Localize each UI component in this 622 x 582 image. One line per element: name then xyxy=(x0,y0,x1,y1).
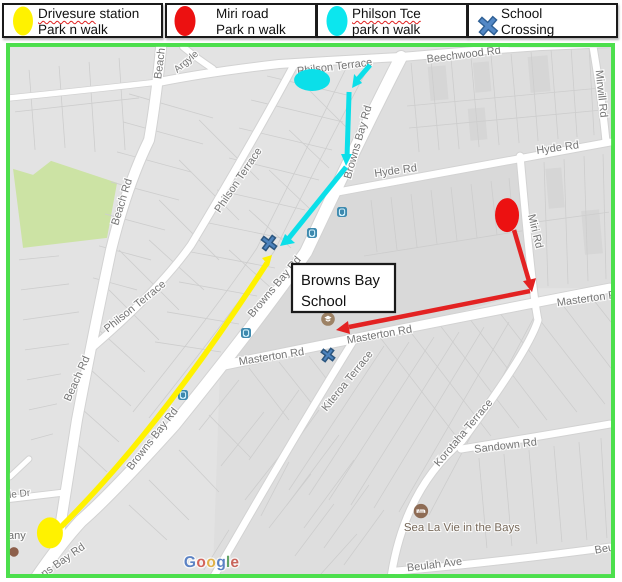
svg-text:Sea La Vie in the Bays: Sea La Vie in the Bays xyxy=(404,522,520,534)
svg-text:g: g xyxy=(216,554,225,571)
svg-text:Browns Bay: Browns Bay xyxy=(301,273,381,289)
svg-text:G: G xyxy=(184,554,196,571)
svg-text:o: o xyxy=(196,554,205,571)
svg-text:Beu: Beu xyxy=(594,542,611,557)
svg-text:e: e xyxy=(230,554,239,571)
svg-text:any: any xyxy=(10,530,26,542)
svg-text:o: o xyxy=(206,554,215,571)
svg-text:le Dr: le Dr xyxy=(10,488,31,501)
svg-text:School: School xyxy=(301,294,346,310)
